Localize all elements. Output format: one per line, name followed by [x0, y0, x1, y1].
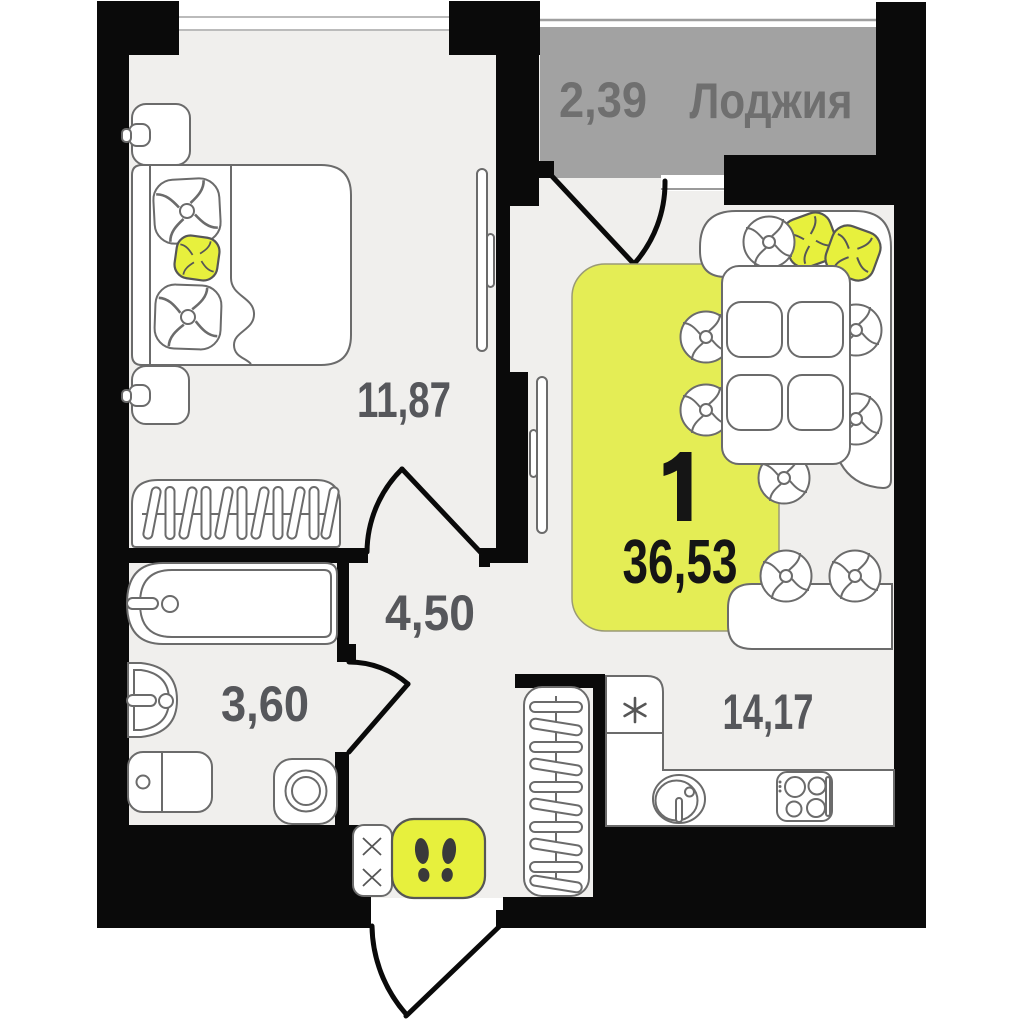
svg-text:Лоджия: Лоджия [690, 73, 853, 129]
svg-text:11,87: 11,87 [357, 372, 451, 428]
svg-text:36,53: 36,53 [623, 528, 738, 597]
svg-text:3,60: 3,60 [221, 676, 309, 732]
svg-text:2,39: 2,39 [559, 72, 647, 128]
svg-text:14,17: 14,17 [723, 684, 814, 740]
svg-text:4,50: 4,50 [385, 585, 475, 641]
